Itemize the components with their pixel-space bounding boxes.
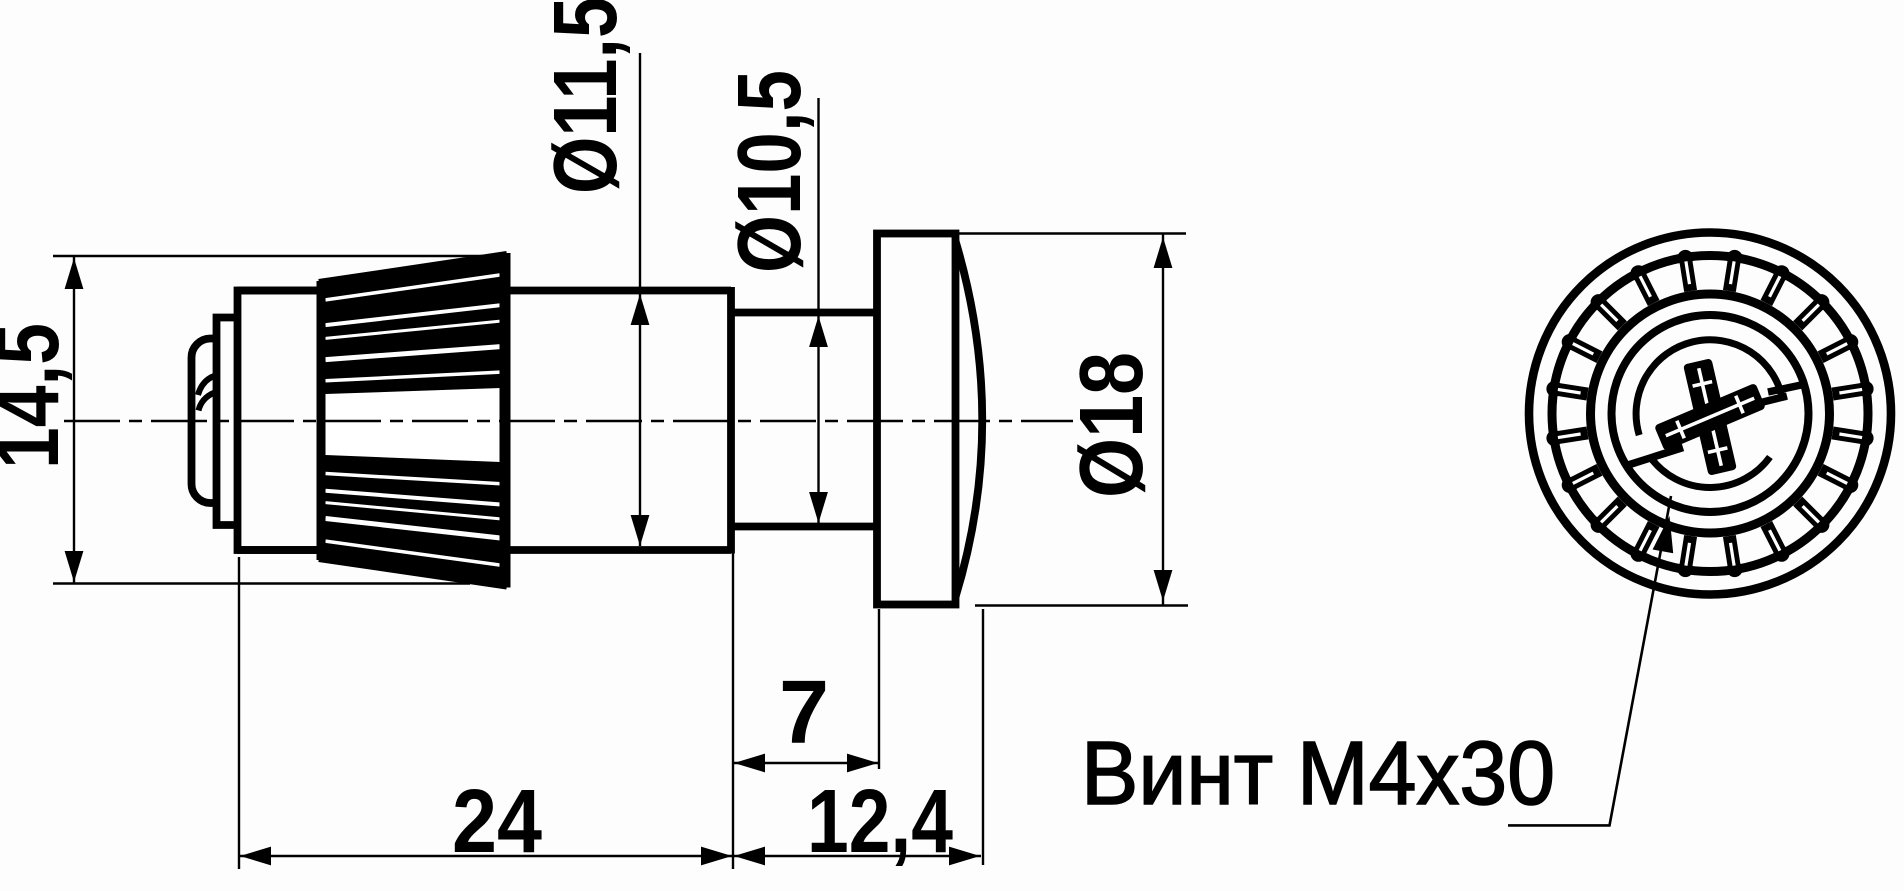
- svg-text:12,4: 12,4: [807, 772, 953, 872]
- svg-text:Ø18: Ø18: [1062, 352, 1162, 498]
- svg-text:Винт М4х30: Винт М4х30: [1081, 724, 1555, 824]
- svg-text:14,5: 14,5: [0, 323, 78, 469]
- svg-text:Ø11,5: Ø11,5: [536, 0, 636, 194]
- svg-text:24: 24: [452, 772, 542, 872]
- svg-text:Ø10,5: Ø10,5: [720, 70, 820, 273]
- svg-text:7: 7: [779, 663, 829, 763]
